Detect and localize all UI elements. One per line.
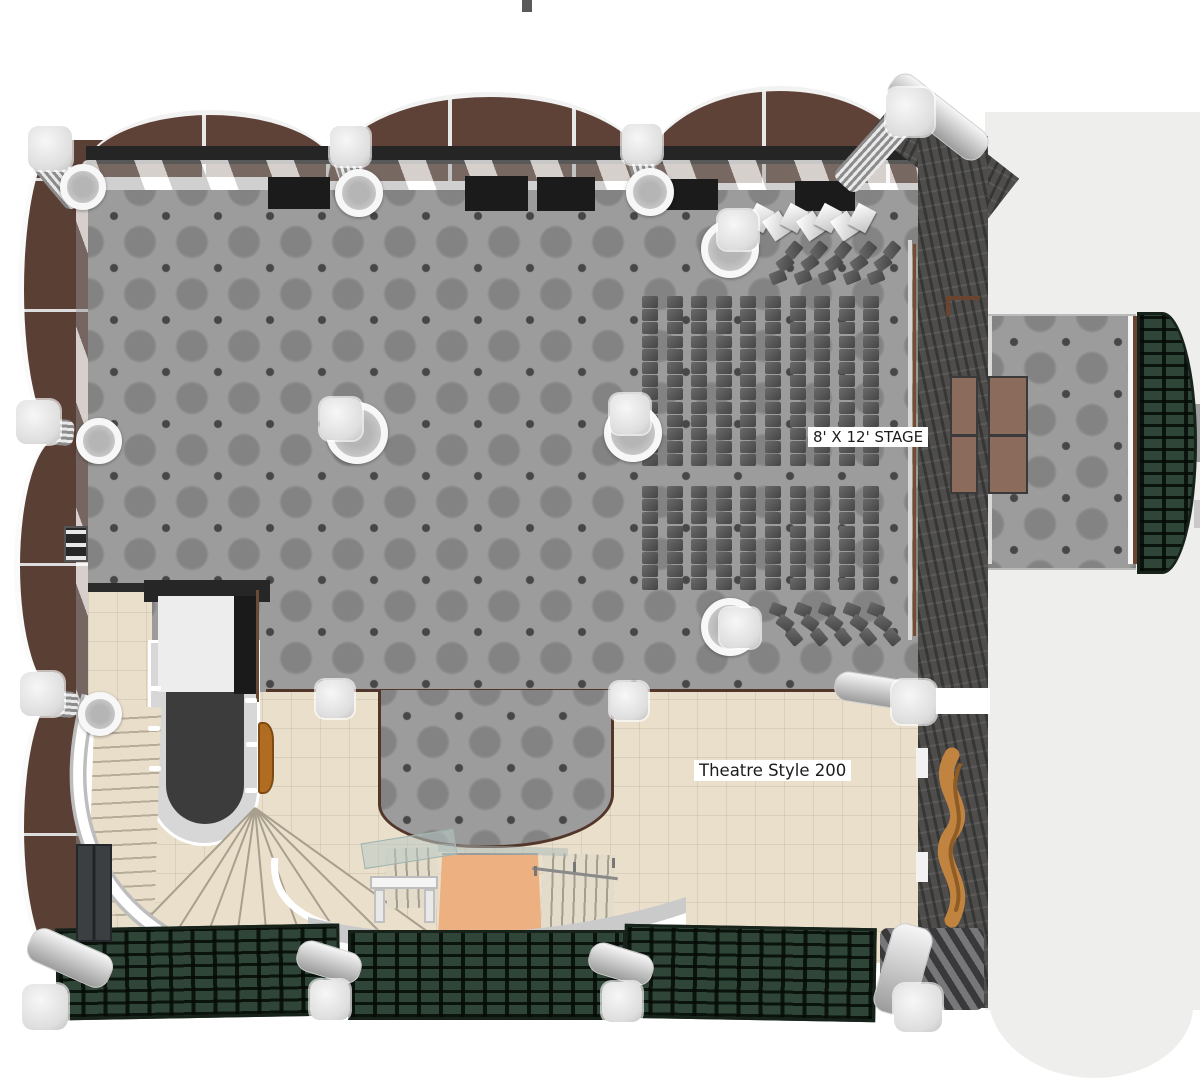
theatre-seat [667,336,683,348]
theatre-seat [765,526,781,538]
column-capital [886,88,934,136]
theatre-seat [691,322,707,334]
theatre-seat [814,349,830,361]
theatre-seat [642,336,658,348]
theatre-seat [716,309,732,321]
theatre-seat [765,512,781,524]
theatre-seat [863,322,879,334]
theatre-seat [765,565,781,577]
theatre-seat [839,388,855,400]
theatre-seat [790,428,806,440]
theatre-seat [765,441,781,453]
theatre-seat [814,486,830,498]
theatre-seat [765,349,781,361]
theatre-seat [814,526,830,538]
theatre-seat [716,362,732,374]
theatre-seat [863,499,879,511]
theatre-seat [740,578,756,590]
theatre-seat [740,486,756,498]
theatre-seat [716,402,732,414]
stage-split-line [990,434,1026,437]
theatre-seat [740,441,756,453]
theatre-seat [790,512,806,524]
theatre-seat [642,552,658,564]
theatre-seat [667,388,683,400]
theatre-seat [667,454,683,466]
theatre-seat [765,296,781,308]
wall-panel [465,176,528,211]
theatre-seat [691,565,707,577]
theatre-seat [642,539,658,551]
stage-platform [988,376,1028,494]
theatre-seat [691,402,707,414]
theatre-seat [790,552,806,564]
theatre-seat [716,486,732,498]
theatre-seat [765,336,781,348]
theatre-seat [667,415,683,427]
column-capital [610,394,650,434]
theatre-seat [667,349,683,361]
column-capital [718,210,758,250]
theatre-seat [790,454,806,466]
theatre-seat [839,309,855,321]
theatre-seat [839,565,855,577]
column-capital [892,680,936,724]
theatre-seat [716,454,732,466]
column-capital [622,124,662,164]
theatre-seat [790,539,806,551]
theatre-seat [790,441,806,453]
theatre-seat [691,454,707,466]
theatre-seat [814,296,830,308]
theatre-seat [839,526,855,538]
theatre-seat [642,296,658,308]
theatre-seat [691,552,707,564]
theatre-seat [716,296,732,308]
theatre-style-label: Theatre Style 200 [694,760,851,781]
theatre-seat [765,415,781,427]
theatre-seat [667,565,683,577]
theatre-seat [863,539,879,551]
theatre-seat [839,552,855,564]
theatre-seat [642,375,658,387]
theatre-seat [839,415,855,427]
theatre-seat [691,362,707,374]
theatre-seat [839,322,855,334]
column-ring [60,164,106,210]
theatre-seat [790,402,806,414]
theatre-seat [691,309,707,321]
theatre-seat [814,336,830,348]
theatre-seat [814,499,830,511]
theatre-seat [765,552,781,564]
theatre-seat [691,578,707,590]
theatre-seat [765,388,781,400]
theatre-seat [642,499,658,511]
theatre-seat [790,578,806,590]
theatre-seat [790,565,806,577]
theatre-seat [765,402,781,414]
theatre-seat [863,296,879,308]
theatre-seat [716,388,732,400]
stair-rail-tick [149,686,161,691]
stage-label: 8' X 12' STAGE [808,427,928,447]
theatre-seat [863,578,879,590]
stair-rail-tick [245,698,257,703]
theatre-seat [716,539,732,551]
theatre-seat [740,322,756,334]
theatre-seat [790,309,806,321]
theatre-seat [740,415,756,427]
theatre-seat [740,349,756,361]
theatre-seat [740,499,756,511]
theatre-seat [839,296,855,308]
theatre-seat [716,336,732,348]
column-capital [22,984,68,1030]
theatre-seat [790,499,806,511]
theatre-seat [667,296,683,308]
theatre-seat [863,309,879,321]
theatre-seat [642,322,658,334]
theatre-seat [691,296,707,308]
theatre-seat [765,499,781,511]
theatre-seat [691,375,707,387]
theatre-seat [839,349,855,361]
theatre-seat [790,296,806,308]
theatre-seat [790,349,806,361]
stair-rail-tick [246,742,258,747]
theatre-seat [814,578,830,590]
theatre-seat [642,309,658,321]
theatre-seat [667,499,683,511]
column-ring [76,418,122,464]
column-capital [320,398,362,440]
theatre-seat [667,552,683,564]
column-capital [610,682,648,720]
theatre-seat [642,349,658,361]
floor-plan-render: 8' X 12' STAGE Theatre Style 200 [0,0,1200,1088]
theatre-seat [814,539,830,551]
theatre-seat [863,526,879,538]
theatre-seat [863,375,879,387]
theatre-seat [790,375,806,387]
stage-platform [950,376,978,494]
theatre-seat [814,552,830,564]
theatre-seat [740,309,756,321]
theatre-seat [863,565,879,577]
theatre-seat [716,441,732,453]
stair-rail-tick [245,788,257,793]
wall-panel [268,177,330,209]
theatre-seat [790,415,806,427]
theatre-seat-wing [818,268,837,285]
theatre-seat [863,362,879,374]
theatre-seat [740,565,756,577]
theatre-seat [691,441,707,453]
column-capital [20,672,64,716]
theatre-seat [839,512,855,524]
theatre-seat [765,486,781,498]
theatre-seat [691,486,707,498]
theatre-seat [667,362,683,374]
theatre-seat [740,539,756,551]
theatre-seat [740,552,756,564]
column-capital [720,608,760,648]
theatre-seat [716,565,732,577]
stage-split-line [952,434,976,437]
theatre-seat [814,375,830,387]
theatre-seat [765,454,781,466]
theatre-seat [863,349,879,361]
theatre-seat [740,428,756,440]
theatre-seat [790,486,806,498]
theatre-seat [814,415,830,427]
theatre-seat [740,388,756,400]
theatre-seat [667,578,683,590]
theatre-seat [839,578,855,590]
theatre-seat [667,402,683,414]
theatre-seat [691,539,707,551]
theatre-seat [765,539,781,551]
theatre-seat [863,388,879,400]
column-capital [310,980,350,1020]
theatre-seat [814,565,830,577]
theatre-seat [716,322,732,334]
theatre-seat [839,336,855,348]
theatre-seat [691,499,707,511]
theatre-seat [814,362,830,374]
theatre-seat [716,499,732,511]
theatre-seat [667,486,683,498]
theatre-seat [740,454,756,466]
theatre-seat [790,362,806,374]
column-ring [626,168,674,216]
theatre-seat [839,375,855,387]
theatre-seat [740,375,756,387]
theatre-seat [765,362,781,374]
theatre-seat [863,415,879,427]
theatre-seat [765,578,781,590]
column-ring [335,169,383,217]
stair-rail-tick [148,726,160,731]
theatre-seat [740,526,756,538]
theatre-seat [790,322,806,334]
theatre-seat [691,349,707,361]
theatre-seat [839,402,855,414]
theatre-seat [667,526,683,538]
theatre-seat [691,336,707,348]
theatre-seat [740,296,756,308]
theatre-seat [863,486,879,498]
theatre-seat [839,539,855,551]
theatre-seat [863,402,879,414]
theatre-seat [839,454,855,466]
theatre-seat [667,428,683,440]
theatre-seat [716,415,732,427]
theatre-seat [642,578,658,590]
theatre-seat [667,539,683,551]
theatre-seat [839,499,855,511]
theatre-seat [814,322,830,334]
theatre-seat [716,512,732,524]
theatre-seat [691,388,707,400]
theatre-seat [716,428,732,440]
theatre-seat [642,565,658,577]
theatre-seat [765,322,781,334]
theatre-seat [691,512,707,524]
theatre-seat [667,309,683,321]
theatre-seat [667,375,683,387]
theatre-seat [740,362,756,374]
theatre-seat [716,526,732,538]
theatre-seat [814,402,830,414]
theatre-seat [667,512,683,524]
stair-rail-tick [149,766,161,771]
theatre-seat [790,336,806,348]
theatre-style-label-text: Theatre Style 200 [699,761,846,780]
column-capital [602,982,642,1022]
theatre-seat [716,578,732,590]
wall-panel [537,177,595,211]
theatre-seat [716,375,732,387]
theatre-seat [814,454,830,466]
theatre-seat [691,415,707,427]
column-capital [316,680,354,718]
theatre-seat [642,486,658,498]
theatre-seat [667,441,683,453]
stage-label-text: 8' X 12' STAGE [813,428,923,446]
theatre-seat [642,362,658,374]
theatre-seat [642,512,658,524]
theatre-seat [716,349,732,361]
theatre-seat-wing [867,268,886,285]
theatre-seat [740,402,756,414]
theatre-seat [863,552,879,564]
column-capital [894,984,942,1032]
theatre-seat [716,552,732,564]
theatre-seat [667,322,683,334]
theatre-seat [839,486,855,498]
theatre-seat [839,362,855,374]
column-capital [28,126,72,170]
theatre-seat [691,428,707,440]
theatre-seat [863,512,879,524]
theatre-seat [642,526,658,538]
theatre-seat [863,336,879,348]
theatre-seat [740,336,756,348]
theatre-seat [765,375,781,387]
theatre-seat [814,512,830,524]
theatre-seat [814,309,830,321]
theatre-seat [740,512,756,524]
theatre-seat [814,388,830,400]
theatre-seat [691,526,707,538]
theatre-seat [765,309,781,321]
theatre-seat [863,454,879,466]
column-ring [78,692,122,736]
column-capital [330,126,370,166]
theatre-seat [765,428,781,440]
theatre-seat [790,388,806,400]
fallen-column [22,924,117,993]
generated-objects-layer [0,0,1200,1088]
column-capital [16,400,60,444]
theatre-seat [790,526,806,538]
